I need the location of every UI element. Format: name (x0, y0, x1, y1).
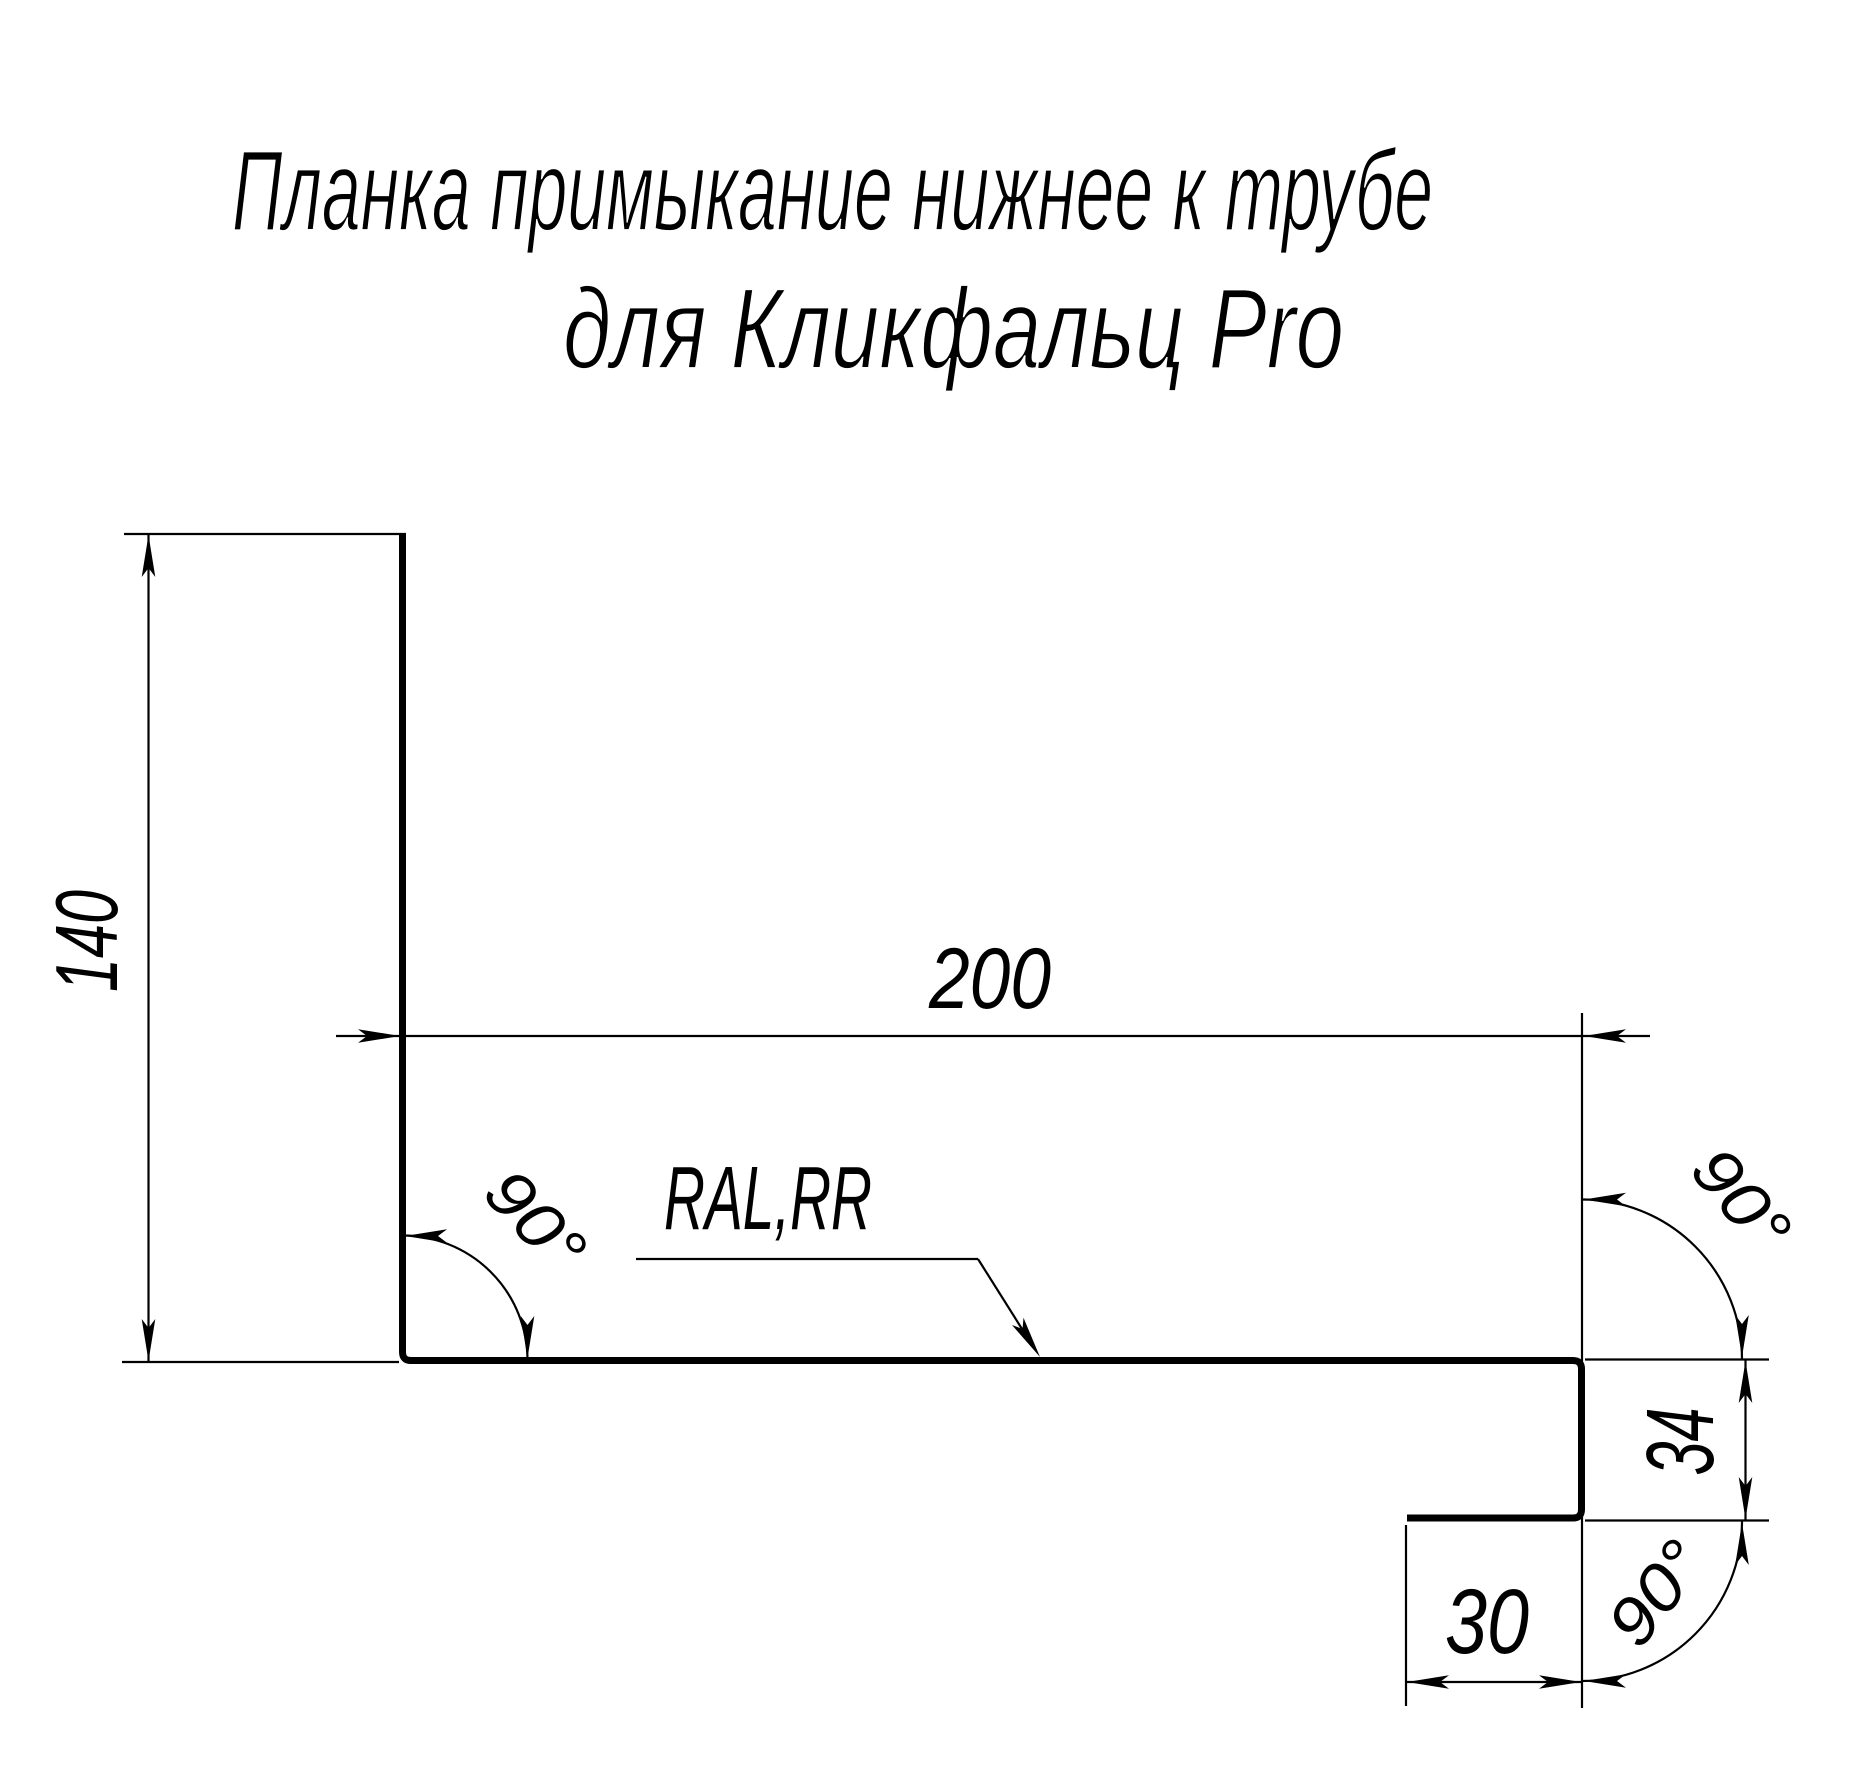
svg-text:для Кликфальц Pro: для Кликфальц Pro (563, 266, 1344, 393)
svg-text:90°: 90° (471, 1154, 602, 1286)
svg-text:90°: 90° (1677, 1133, 1806, 1266)
svg-text:Планка примыкание нижнее к тру: Планка примыкание нижнее к трубе (232, 128, 1433, 255)
svg-text:140: 140 (37, 890, 136, 992)
svg-text:RAL,RR: RAL,RR (664, 1149, 872, 1249)
svg-text:200: 200 (928, 931, 1051, 1027)
svg-text:34: 34 (1627, 1408, 1734, 1476)
svg-text:90°: 90° (1592, 1526, 1719, 1660)
svg-text:30: 30 (1445, 1571, 1529, 1673)
